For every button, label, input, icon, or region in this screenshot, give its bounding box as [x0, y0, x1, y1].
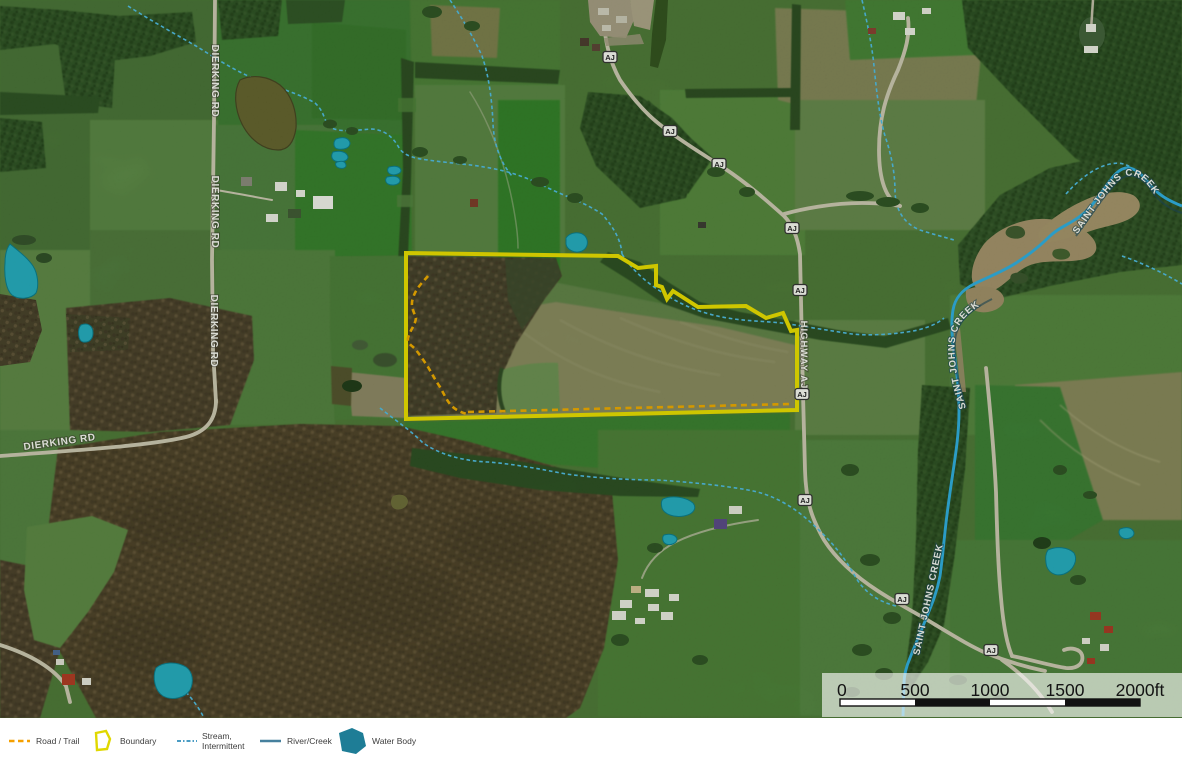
- svg-text:2000ft: 2000ft: [1116, 680, 1165, 700]
- svg-text:1500: 1500: [1046, 680, 1085, 700]
- svg-text:Stream,: Stream,: [202, 731, 232, 741]
- svg-text:Intermittent: Intermittent: [202, 741, 245, 751]
- svg-text:Water Body: Water Body: [372, 736, 417, 746]
- svg-text:Road / Trail: Road / Trail: [36, 736, 80, 746]
- svg-text:Boundary: Boundary: [120, 736, 157, 746]
- svg-text:0: 0: [837, 680, 847, 700]
- svg-text:1000: 1000: [971, 680, 1010, 700]
- svg-text:River/Creek: River/Creek: [287, 736, 333, 746]
- svg-text:500: 500: [900, 680, 929, 700]
